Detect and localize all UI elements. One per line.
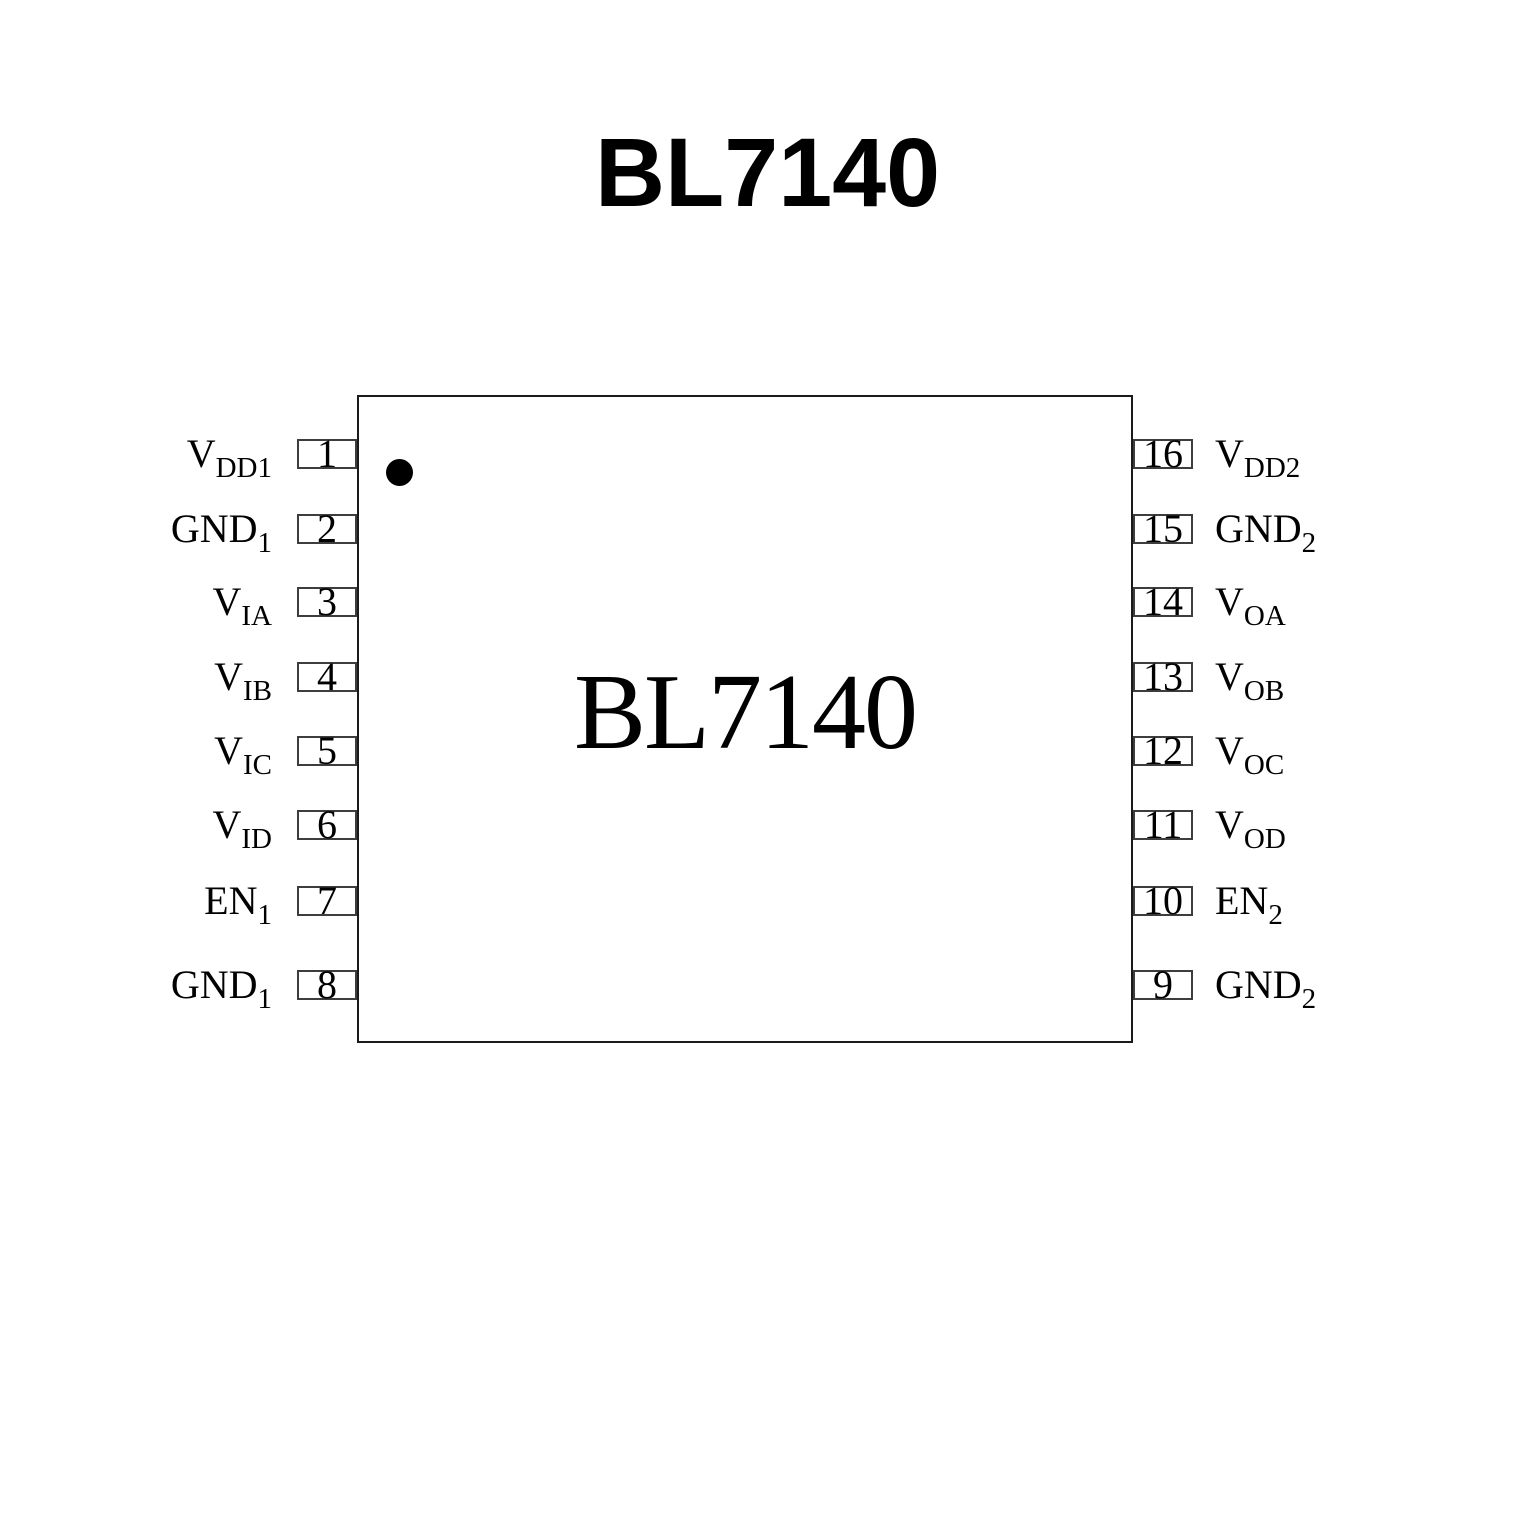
pin-4-label-subscript: IB: [243, 675, 272, 707]
pin-1-label: VDD1: [0, 434, 272, 474]
pin-12-label: VOC: [1215, 731, 1535, 771]
pin-14-label-subscript: OA: [1244, 600, 1286, 632]
pin-3-label-subscript: IA: [241, 600, 272, 632]
pin-5-label-base: V: [214, 728, 243, 773]
pin-5-label: VIC: [0, 731, 272, 771]
pin-8-number: 8: [317, 965, 337, 1005]
page-title: BL7140: [0, 124, 1535, 221]
pin-7-label-subscript: 1: [258, 899, 273, 931]
pin-15-number: 15: [1143, 509, 1183, 549]
pin-8-label: GND1: [0, 965, 272, 1005]
pin-4-label: VIB: [0, 657, 272, 697]
pin-8-label-subscript: 1: [258, 983, 273, 1015]
pin-3-number: 3: [317, 582, 337, 622]
pin-13-label-base: V: [1215, 654, 1244, 699]
pin-2-number: 2: [317, 509, 337, 549]
pin-9-box: 9: [1133, 970, 1193, 1000]
pin-13-number: 13: [1143, 657, 1183, 697]
pin-12-label-base: V: [1215, 728, 1244, 773]
pin1-indicator-dot: [386, 459, 413, 486]
pin-4-label-base: V: [214, 654, 243, 699]
pin-14-label-base: V: [1215, 579, 1244, 624]
pin-10-label: EN2: [1215, 881, 1535, 921]
pin-9-label-subscript: 2: [1302, 983, 1317, 1015]
pin-11-label-subscript: OD: [1244, 823, 1286, 855]
pin-4-box: 4: [297, 662, 357, 692]
pin-12-box: 12: [1133, 736, 1193, 766]
pin-2-label-subscript: 1: [258, 527, 273, 559]
pin-12-label-subscript: OC: [1244, 749, 1284, 781]
pin-3-label-base: V: [213, 579, 242, 624]
pin-10-number: 10: [1143, 881, 1183, 921]
pin-1-number: 1: [317, 434, 337, 474]
pin-6-label-base: V: [213, 802, 242, 847]
pin-6-label: VID: [0, 805, 272, 845]
pin-6-box: 6: [297, 810, 357, 840]
chip-part-number: BL7140: [359, 659, 1131, 767]
pin-1-box: 1: [297, 439, 357, 469]
pin-14-number: 14: [1143, 582, 1183, 622]
pin-15-label: GND2: [1215, 509, 1535, 549]
pin-6-label-subscript: ID: [241, 823, 272, 855]
pin-2-label: GND1: [0, 509, 272, 549]
pin-7-number: 7: [317, 881, 337, 921]
pin-14-label: VOA: [1215, 582, 1535, 622]
pin-1-label-subscript: DD1: [216, 452, 272, 484]
pin-9-label: GND2: [1215, 965, 1535, 1005]
pin-3-label: VIA: [0, 582, 272, 622]
pin-9-number: 9: [1153, 965, 1173, 1005]
pin-5-label-subscript: IC: [243, 749, 272, 781]
pin-13-label: VOB: [1215, 657, 1535, 697]
pin-16-box: 16: [1133, 439, 1193, 469]
pin-8-box: 8: [297, 970, 357, 1000]
pin-15-label-subscript: 2: [1302, 527, 1317, 559]
pin-2-box: 2: [297, 514, 357, 544]
pin-6-number: 6: [317, 805, 337, 845]
pin-4-number: 4: [317, 657, 337, 697]
pin-9-label-base: GND: [1215, 962, 1302, 1007]
pin-10-box: 10: [1133, 886, 1193, 916]
pin-10-label-subscript: 2: [1268, 899, 1283, 931]
pin-11-number: 11: [1144, 805, 1183, 845]
pin-13-box: 13: [1133, 662, 1193, 692]
pin-15-box: 15: [1133, 514, 1193, 544]
pin-14-box: 14: [1133, 587, 1193, 617]
pin-7-label-base: EN: [204, 878, 257, 923]
pin-16-number: 16: [1143, 434, 1183, 474]
pin-13-label-subscript: OB: [1244, 675, 1284, 707]
pin-2-label-base: GND: [171, 506, 258, 551]
pin-1-label-base: V: [187, 431, 216, 476]
pin-10-label-base: EN: [1215, 878, 1268, 923]
pin-11-label-base: V: [1215, 802, 1244, 847]
pinout-diagram: BL7140 BL7140 VDD11GND12VIA3VIB4VIC5VID6…: [0, 0, 1535, 1535]
pin-7-label: EN1: [0, 881, 272, 921]
pin-5-box: 5: [297, 736, 357, 766]
pin-16-label-base: V: [1215, 431, 1244, 476]
chip-body: BL7140: [357, 395, 1133, 1043]
pin-7-box: 7: [297, 886, 357, 916]
pin-15-label-base: GND: [1215, 506, 1302, 551]
pin-8-label-base: GND: [171, 962, 258, 1007]
pin-11-label: VOD: [1215, 805, 1535, 845]
pin-16-label: VDD2: [1215, 434, 1535, 474]
pin-3-box: 3: [297, 587, 357, 617]
pin-11-box: 11: [1133, 810, 1193, 840]
pin-16-label-subscript: DD2: [1244, 452, 1300, 484]
pin-5-number: 5: [317, 731, 337, 771]
pin-12-number: 12: [1143, 731, 1183, 771]
